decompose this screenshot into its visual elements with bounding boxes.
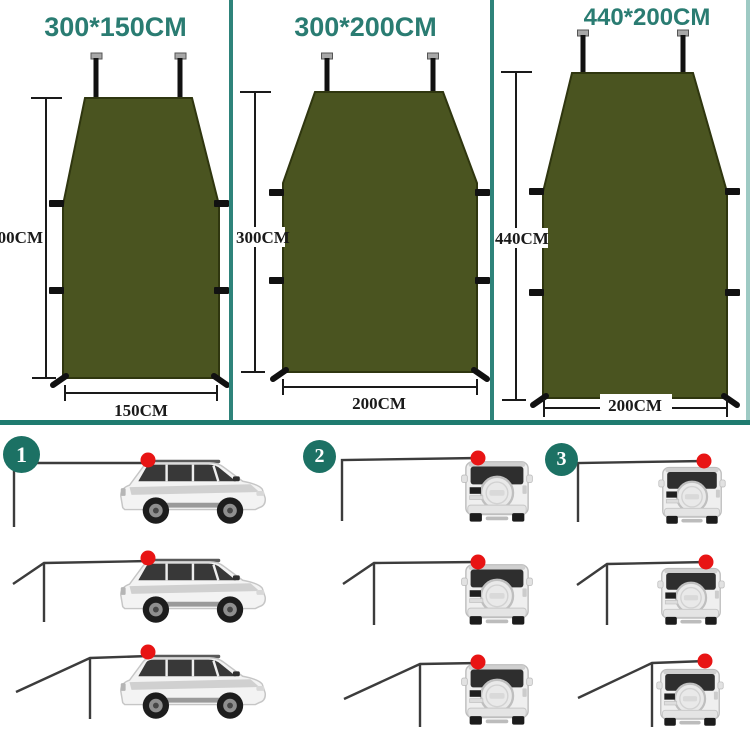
tarp-diagram-440x200: 440CM 200CM — [492, 28, 746, 420]
step-number: 2 — [315, 445, 325, 468]
height-label: 300CM — [236, 228, 290, 247]
attachment-point-dot — [141, 453, 156, 468]
attachment-point-dot — [699, 555, 714, 570]
attachment-point-dot — [141, 551, 156, 566]
pole-icon — [91, 53, 186, 99]
size-title-300x150: 300*150CM — [28, 12, 203, 43]
attachment-point-dot — [698, 654, 713, 669]
awning-frame-lines — [344, 663, 479, 727]
attachment-point-dot — [471, 655, 486, 670]
attachment-point-dot — [697, 454, 712, 469]
attachment-point-dot — [471, 451, 486, 466]
panel-right-border — [746, 0, 750, 424]
awning-frame-lines — [578, 461, 705, 522]
step-badge-2: 2 — [303, 440, 336, 473]
tarp-diagram-300x150: 300CM 150CM — [0, 45, 230, 420]
pole-icon — [578, 30, 689, 73]
step-number: 1 — [16, 442, 27, 468]
awning-frame-lines — [13, 561, 149, 622]
width-dimension — [283, 379, 477, 395]
step-number: 3 — [557, 448, 567, 471]
panel-divider — [229, 0, 233, 421]
awning-frame-lines — [577, 562, 707, 625]
width-label: 150CM — [114, 401, 168, 420]
attachment-point-dot — [141, 645, 156, 660]
tarp-shape — [283, 92, 477, 372]
height-label: 440CM — [495, 229, 549, 248]
width-label: 200CM — [608, 396, 662, 415]
tarp-shape — [543, 73, 727, 398]
width-label: 200CM — [352, 394, 406, 413]
tarp-diagram-300x200: 300CM 200CM — [231, 45, 491, 420]
awning-frame-lines — [16, 656, 149, 719]
awning-frame-lines — [343, 562, 479, 625]
awning-product-infographic: 300*150CM 300*200CM 440*200CM 300CM — [0, 0, 750, 750]
attachment-point-dot — [471, 555, 486, 570]
step-badge-3: 3 — [545, 443, 578, 476]
step-badge-1: 1 — [3, 436, 40, 473]
pole-icon — [322, 53, 439, 94]
height-label: 300CM — [0, 228, 43, 247]
awning-frame-lines — [14, 463, 149, 527]
awning-frame-lines — [578, 661, 706, 727]
setup-lines-overlay — [0, 420, 750, 750]
panel-divider — [490, 0, 494, 421]
size-title-300x200: 300*200CM — [268, 12, 463, 43]
awning-frame-lines — [342, 458, 479, 521]
tarp-shape — [63, 98, 219, 378]
width-dimension — [65, 385, 217, 401]
